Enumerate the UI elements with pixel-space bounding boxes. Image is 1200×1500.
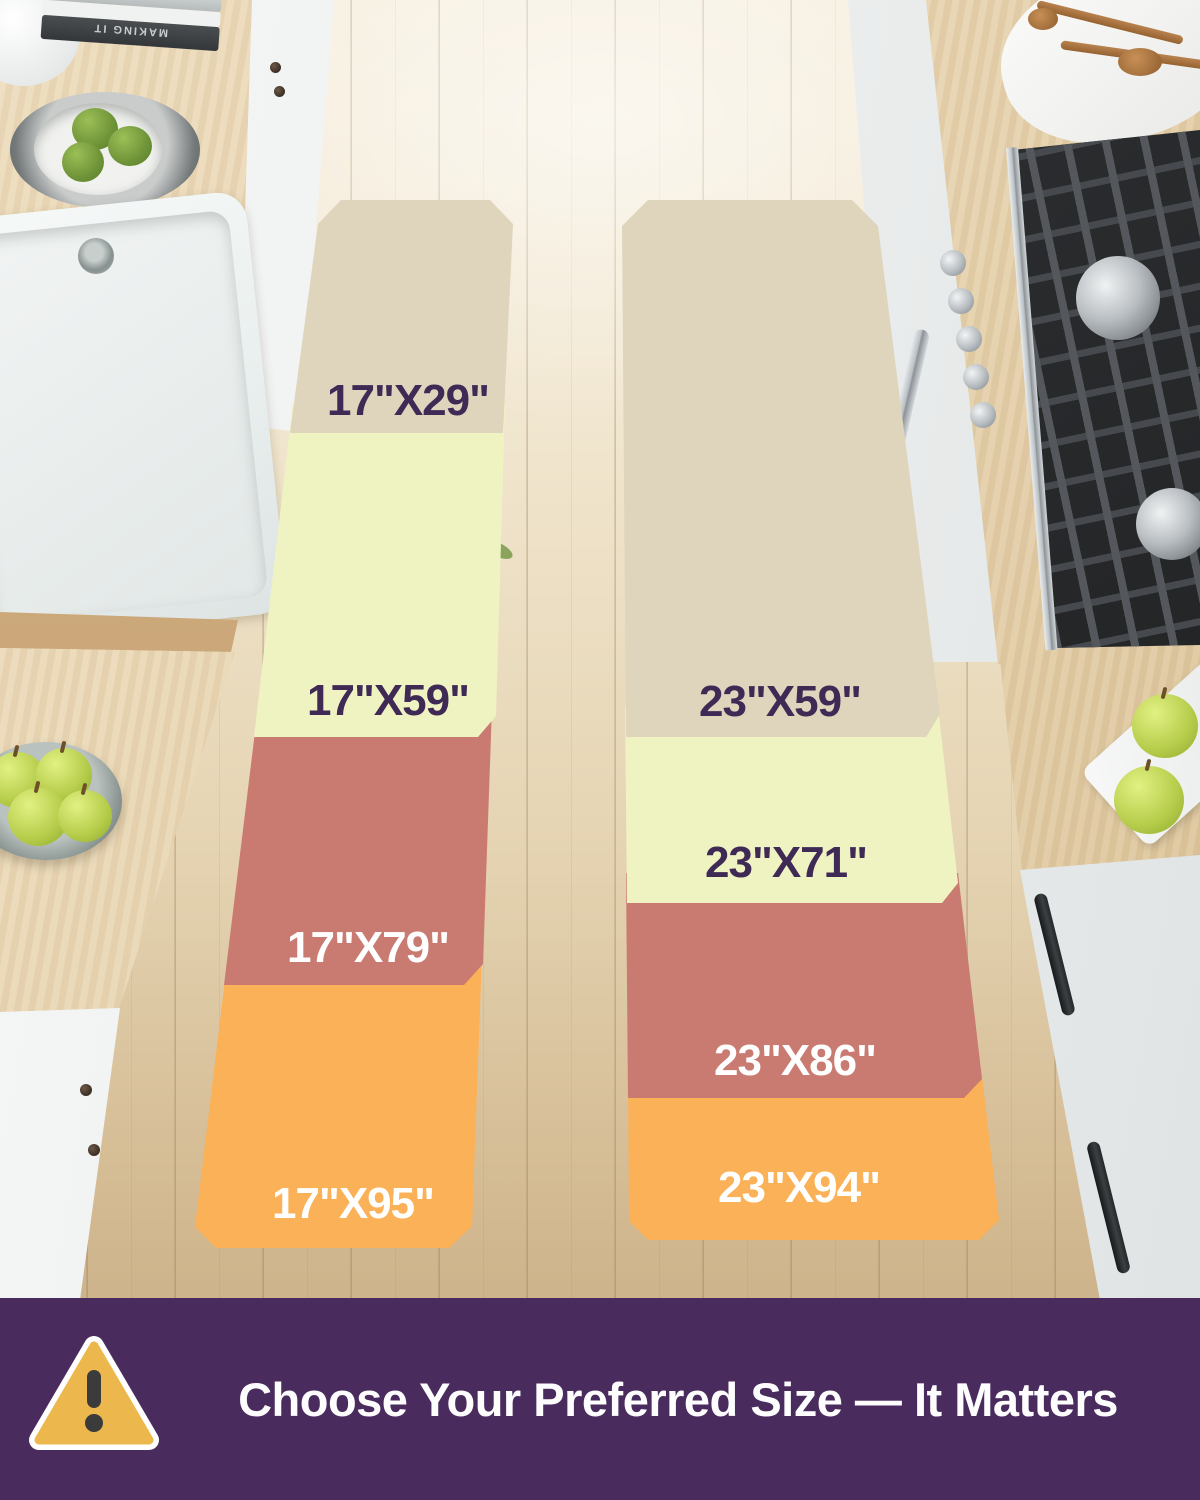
cabinet-knob	[80, 1084, 92, 1096]
size-label-23x86: 23"X86"	[714, 1036, 876, 1086]
farmhouse-sink	[0, 190, 288, 644]
burner-cap	[1136, 488, 1200, 560]
size-label-17x79: 17"X79"	[287, 923, 449, 973]
banner-headline: Choose Your Preferred Size — It Matters	[168, 1298, 1188, 1500]
size-label-23x71: 23"X71"	[705, 838, 867, 888]
lime-fruit	[62, 142, 104, 182]
cabinet-knob	[88, 1144, 100, 1156]
green-apple	[58, 790, 112, 842]
green-apple	[1132, 694, 1198, 758]
size-guide-graphic: MAKING IT 1	[0, 0, 1200, 1500]
cabinet-knob	[270, 62, 281, 73]
green-apple	[1114, 766, 1184, 834]
stove-knob	[956, 326, 982, 352]
stove-knob	[940, 250, 966, 276]
stove-knob	[963, 364, 989, 390]
size-label-17x59: 17"X59"	[307, 676, 469, 726]
size-label-23x59: 23"X59"	[699, 677, 861, 727]
size-label-17x95: 17"X95"	[272, 1179, 434, 1229]
wooden-spoon-head	[1028, 8, 1058, 30]
size-label-23x94: 23"X94"	[718, 1163, 880, 1213]
cabinet-knob	[274, 86, 285, 97]
bottom-banner: Choose Your Preferred Size — It Matters	[0, 1298, 1200, 1500]
stove-knob	[948, 288, 974, 314]
wooden-spoon-head	[1118, 48, 1162, 76]
burner-cap	[1076, 256, 1160, 340]
lime-fruit	[108, 126, 152, 166]
size-label-17x29: 17"X29"	[327, 376, 489, 426]
warning-triangle-icon	[28, 1332, 160, 1454]
stove-knob	[970, 402, 996, 428]
sink-drain	[78, 238, 114, 274]
